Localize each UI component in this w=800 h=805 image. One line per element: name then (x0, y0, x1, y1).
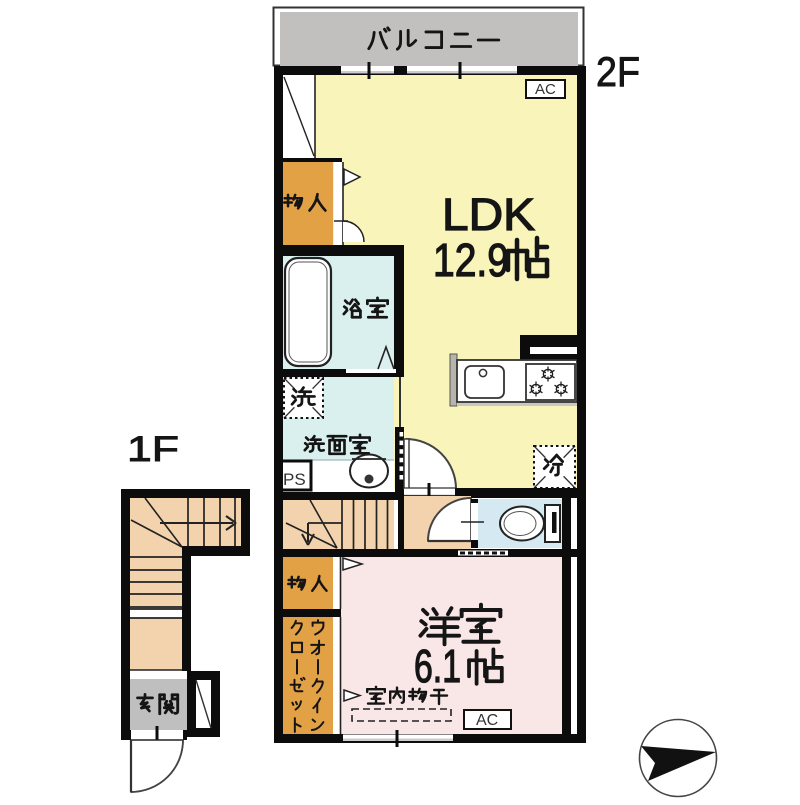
svg-text:PS: PS (283, 470, 306, 489)
svg-text:12.9: 12.9 (433, 234, 509, 286)
svg-text:6.1: 6.1 (414, 640, 461, 692)
svg-text:1F: 1F (127, 430, 179, 469)
svg-text:AC: AC (476, 712, 498, 729)
svg-text:2F: 2F (596, 48, 640, 95)
svg-text:AC: AC (535, 81, 556, 98)
svg-text:LDK: LDK (442, 189, 535, 240)
